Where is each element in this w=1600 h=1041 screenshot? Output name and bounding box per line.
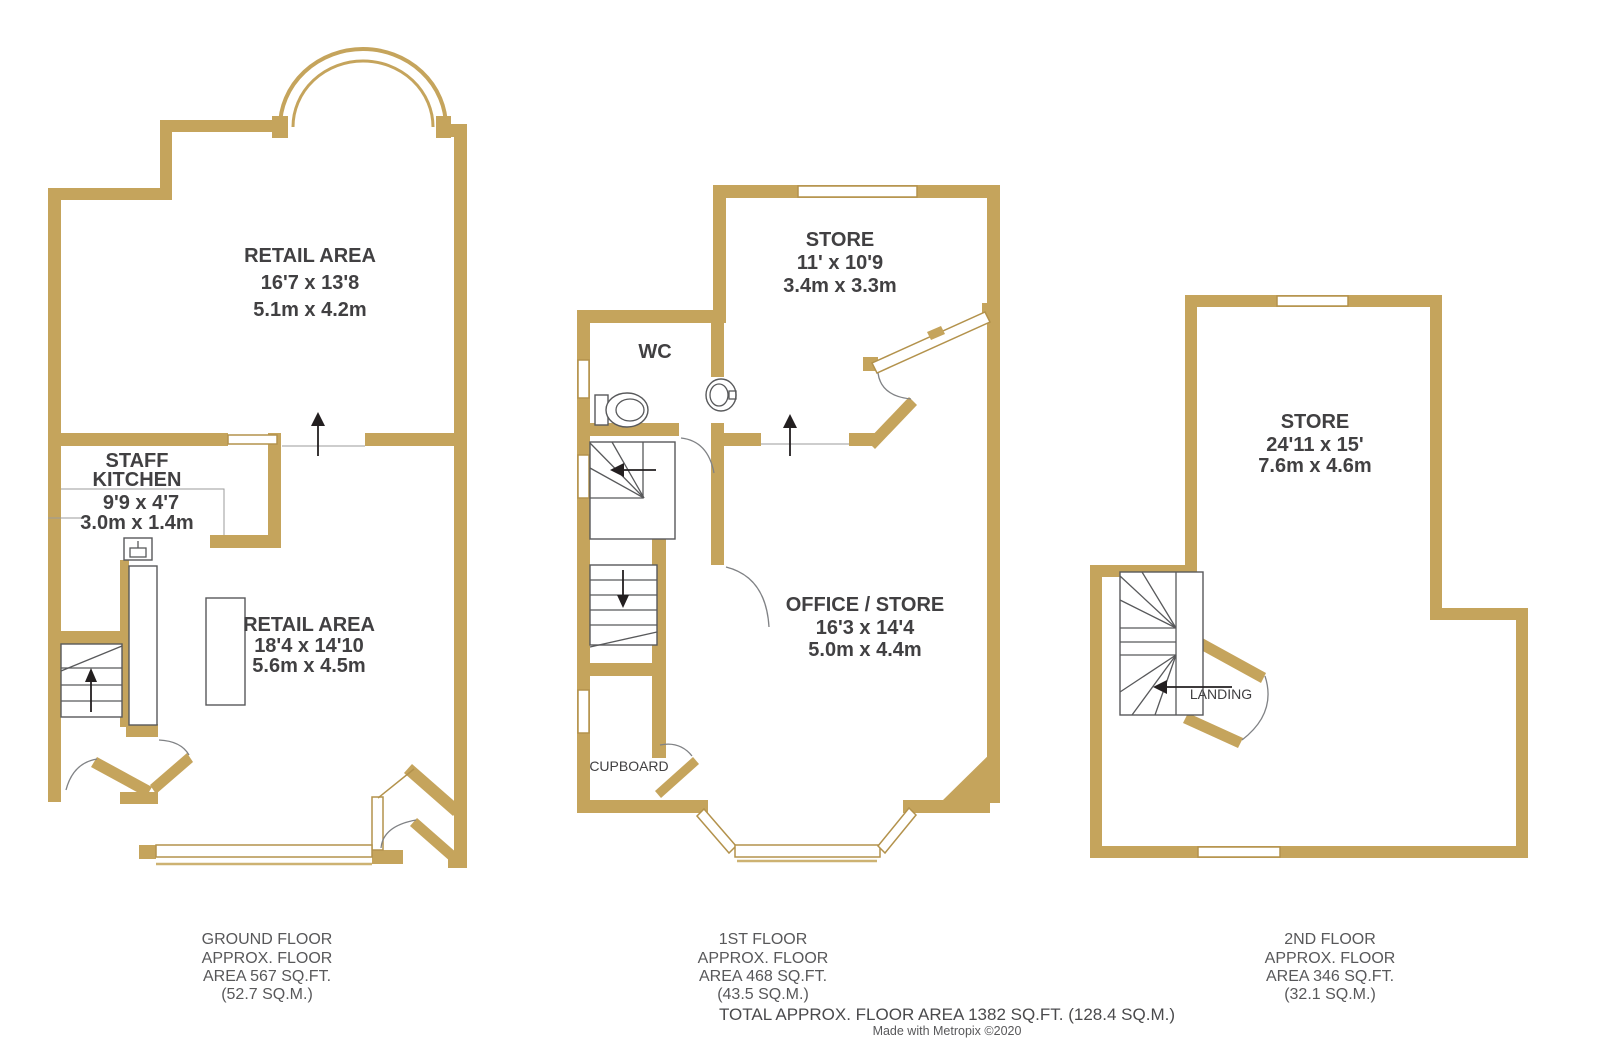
serving-hatch [228,435,277,444]
footer-line: (52.7 SQ.M.) [221,986,313,1003]
room-dims-imperial: 18'4 x 14'10 [254,635,364,657]
room-dims-metric: 5.0m x 4.4m [808,639,921,661]
room-label-retail-front: RETAIL AREA 16'7 x 13'8 5.1m x 4.2m [244,245,376,321]
toilet [606,393,648,427]
first-floor-plan: STORE 11' x 10'9 3.4m x 3.3m WC OFFICE /… [577,185,1000,861]
opening-arrow [761,414,849,456]
floorplan-page: RETAIL AREA 16'7 x 13'8 5.1m x 4.2m STAF… [0,0,1600,1041]
metropix-credit: Made with Metropix ©2020 [873,1024,1022,1038]
cupboard-window [578,690,589,733]
room-dims-imperial: 16'3 x 14'4 [816,617,915,639]
room-dims-metric: 5.6m x 4.5m [252,655,365,677]
room-dims-imperial: 24'11 x 15' [1266,434,1363,456]
room-label-landing: LANDING [1190,686,1252,702]
entrance-door-arc [66,759,97,790]
room-dims-metric: 3.0m x 1.4m [80,512,193,534]
footer-line: APPROX. FLOOR [1265,950,1396,967]
total-floor-area: TOTAL APPROX. FLOOR AREA 1382 SQ.FT. (12… [719,1005,1175,1024]
second-floor-footer: 2ND FLOOR APPROX. FLOOR AREA 346 SQ.FT. … [1265,931,1396,1003]
first-floor-doors [660,373,911,756]
first-floor-footer: 1ST FLOOR APPROX. FLOOR AREA 468 SQ.FT. … [698,931,829,1003]
side-entrance-door-arc [381,820,416,848]
room-dims-metric: 7.6m x 4.6m [1258,455,1371,477]
footer-line: 2ND FLOOR [1284,931,1376,948]
footer-line: (32.1 SQ.M.) [1284,986,1376,1003]
ground-floor-doors [66,740,416,848]
glazed-screen [872,312,990,373]
store-window-bottom [1198,847,1280,857]
floorplan-drawing: RETAIL AREA 16'7 x 13'8 5.1m x 4.2m STAF… [0,0,1600,1041]
store-window [798,186,917,197]
wc-fixtures [595,379,736,427]
room-dims-imperial: 16'7 x 13'8 [261,272,360,294]
store-door-arc [878,373,911,399]
second-floor-windows [1198,296,1348,857]
room-name-2: KITCHEN [93,469,182,491]
footer-line: AREA 468 SQ.FT. [699,968,827,985]
bay-window-left [697,809,736,853]
room-dims-imperial: 11' x 10'9 [797,252,883,274]
room-name: RETAIL AREA [243,614,375,636]
retail-counter [129,566,157,725]
ground-floor-plan: RETAIL AREA 16'7 x 13'8 5.1m x 4.2m STAF… [48,49,467,868]
room-dims-imperial: 9'9 x 4'7 [103,492,179,514]
lobby-door-arc [159,740,189,755]
room-name: STORE [806,229,875,251]
footer-line: APPROX. FLOOR [202,950,333,967]
room-label-office-store: OFFICE / STORE 16'3 x 14'4 5.0m x 4.4m [786,594,945,661]
room-dims-metric: 5.1m x 4.2m [253,299,366,321]
angled-shopfront-window [378,769,414,798]
shopfront-window [156,845,372,857]
room-name: STORE [1281,411,1350,433]
footer-line: AREA 567 SQ.FT. [203,968,331,985]
room-label-store-first: STORE 11' x 10'9 3.4m x 3.3m [783,229,896,297]
store-window-top [1277,296,1348,306]
office-door-arc [726,567,769,627]
ground-floor-footer: GROUND FLOOR APPROX. FLOOR AREA 567 SQ.F… [202,931,333,1003]
stair-window [578,455,589,498]
bay-window-front [735,845,880,857]
footer-line: 1ST FLOOR [719,931,808,948]
room-label-retail-rear: RETAIL AREA 18'4 x 14'10 5.6m x 4.5m [243,614,375,677]
second-floor-plan: STORE 24'11 x 15' 7.6m x 4.6m LANDING [1090,295,1528,858]
ground-floor-stairs [61,644,122,717]
footer-line: APPROX. FLOOR [698,950,829,967]
room-label-wc: WC [638,341,671,363]
opening-arrow [282,412,365,456]
arched-bay-window [280,49,446,127]
room-label-staff-kitchen: STAFF KITCHEN 9'9 x 4'7 3.0m x 1.4m [80,450,193,534]
shopfront-side-window [372,797,383,850]
footer-line: GROUND FLOOR [202,931,333,948]
room-label-cupboard: CUPBOARD [589,758,668,774]
room-dims-metric: 3.4m x 3.3m [783,275,896,297]
wc-door-arc [681,438,714,473]
footer-line: (43.5 SQ.M.) [717,986,809,1003]
footer-line: AREA 346 SQ.FT. [1266,968,1394,985]
display-unit [206,598,245,705]
room-label-store-second: STORE 24'11 x 15' 7.6m x 4.6m [1258,411,1371,477]
wc-window [578,360,589,398]
bay-window-right [878,808,916,853]
room-name: OFFICE / STORE [786,594,945,616]
room-name: RETAIL AREA [244,245,376,267]
